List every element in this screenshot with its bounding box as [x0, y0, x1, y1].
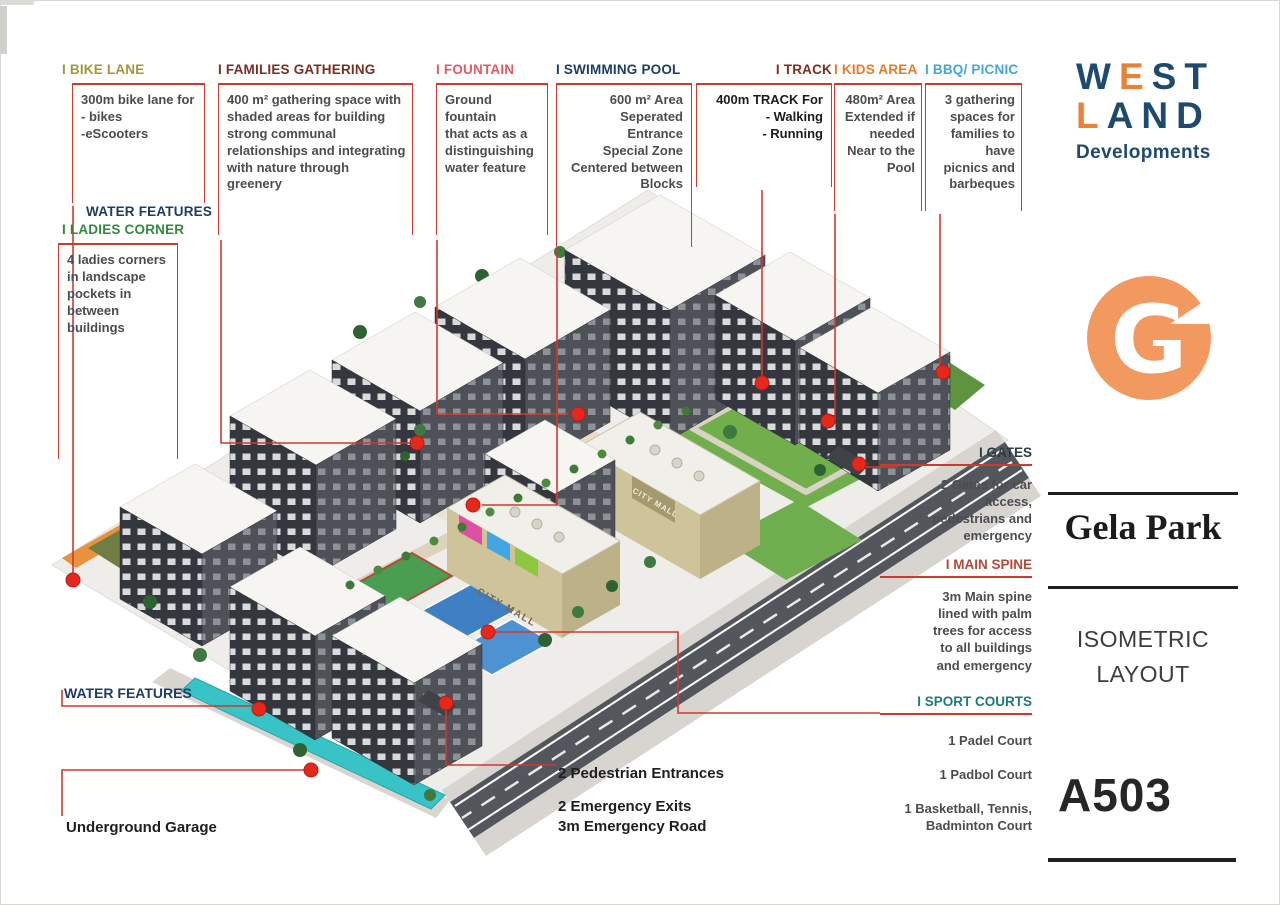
logo-letter: N: [1141, 95, 1176, 136]
sport-courts-item: 1 Padbol Court: [880, 766, 1032, 783]
divider-rule: [1048, 858, 1236, 862]
main-spine-body: 3m Main spine lined with palm trees for …: [880, 588, 1032, 674]
main-spine-title: I MAIN SPINE: [880, 557, 1032, 578]
bike-lane-title: I BIKE LANE: [62, 62, 207, 77]
ladies-corner-title: I LADIES CORNER: [58, 222, 203, 237]
annotation-families-gathering: I FAMILIES GATHERING 400 m² gathering sp…: [218, 62, 413, 235]
annotation-sport-courts: I SPORT COURTS 1 Padel Court 1 Padbol Co…: [880, 694, 1032, 835]
gates-title: I GATES: [880, 445, 1032, 466]
water-features-bottom-title: WATER FEATURES: [64, 684, 192, 703]
fountain-title: I FOUNTAIN: [436, 62, 548, 77]
annotation-kids-area: I KIDS AREA 480m² Area Extended if neede…: [834, 62, 922, 211]
annotation-fountain: I FOUNTAIN Ground fountain that acts as …: [436, 62, 548, 235]
leader-underground: [62, 770, 306, 816]
annotation-ladies-corner: WATER FEATURES I LADIES CORNER 4 ladies …: [58, 204, 203, 459]
layout-type-label: ISOMETRIC LAYOUT: [1042, 622, 1244, 691]
logo-letter: L: [1076, 95, 1107, 136]
families-gathering-title: I FAMILIES GATHERING: [218, 62, 413, 77]
logo-letter: E: [1119, 56, 1152, 97]
underground-garage-label: Underground Garage: [66, 818, 217, 838]
sport-courts-title: I SPORT COURTS: [880, 694, 1032, 715]
annotation-swimming-pool: I SWIMMING POOL 600 m² Area Seperated En…: [556, 62, 692, 247]
sport-courts-item: 1 Padel Court: [880, 732, 1032, 749]
annotation-bike-lane: I BIKE LANE 300m bike lane for - bikes -…: [62, 62, 207, 203]
bbq-picnic-title: I BBQ/ PICNIC: [925, 62, 1022, 77]
track-body: 400m TRACK For - Walking - Running: [696, 83, 832, 187]
gela-park-logo: G: [1083, 272, 1215, 404]
pedestrian-entrances-label: 2 Pedestrian Entrances: [558, 764, 724, 784]
sport-courts-item: 1 Basketball, Tennis, Badminton Court: [880, 800, 1032, 834]
logo-arm: [1149, 324, 1209, 340]
bike-lane-body: 300m bike lane for - bikes -eScooters: [72, 83, 205, 203]
westland-logo-west: WEST: [1076, 58, 1236, 97]
swimming-pool-body: 600 m² Area Seperated Entrance Special Z…: [556, 83, 692, 247]
logo-letter: W: [1076, 56, 1119, 97]
westland-developments-label: Developments: [1076, 143, 1236, 163]
gela-logo-g: G: [1110, 286, 1187, 395]
divider-rule: [1048, 586, 1238, 589]
project-name: Gela Park: [1042, 506, 1244, 548]
annotation-track: I TRACK 400m TRACK For - Walking - Runni…: [696, 62, 832, 187]
logo-letter: D: [1176, 95, 1211, 136]
logo-letter: A: [1107, 95, 1142, 136]
divider-rule: [1048, 492, 1238, 495]
logo-letter: T: [1184, 56, 1215, 97]
kids-area-body: 480m² Area Extended if needed Near to th…: [834, 83, 922, 211]
annotation-gates: I GATES 2 Gates for car access, pedestri…: [880, 445, 1032, 545]
ladies-corner-body: 4 ladies corners in landscape pockets in…: [58, 243, 178, 459]
fountain-body: Ground fountain that acts as a distingui…: [436, 83, 548, 235]
water-features-top-title: WATER FEATURES: [58, 204, 203, 219]
emergency-label: 2 Emergency Exits 3m Emergency Road: [558, 797, 706, 838]
kids-area-title: I KIDS AREA: [834, 62, 922, 77]
annotation-bbq-picnic: I BBQ/ PICNIC 3 gathering spaces for fam…: [925, 62, 1022, 211]
track-title: I TRACK: [696, 62, 832, 77]
swimming-pool-title: I SWIMMING POOL: [556, 62, 692, 77]
gates-body: 2 Gates for car access, pedestrians and …: [880, 476, 1032, 545]
bbq-picnic-body: 3 gathering spaces for families to have …: [925, 83, 1022, 211]
westland-logo: WEST LAND Developments: [1076, 58, 1236, 163]
unit-code: A503: [1058, 768, 1172, 822]
families-gathering-body: 400 m² gathering space with shaded areas…: [218, 83, 413, 235]
logo-letter: S: [1152, 56, 1185, 97]
westland-logo-land: LAND: [1076, 97, 1236, 136]
annotation-main-spine: I MAIN SPINE 3m Main spine lined with pa…: [880, 557, 1032, 674]
